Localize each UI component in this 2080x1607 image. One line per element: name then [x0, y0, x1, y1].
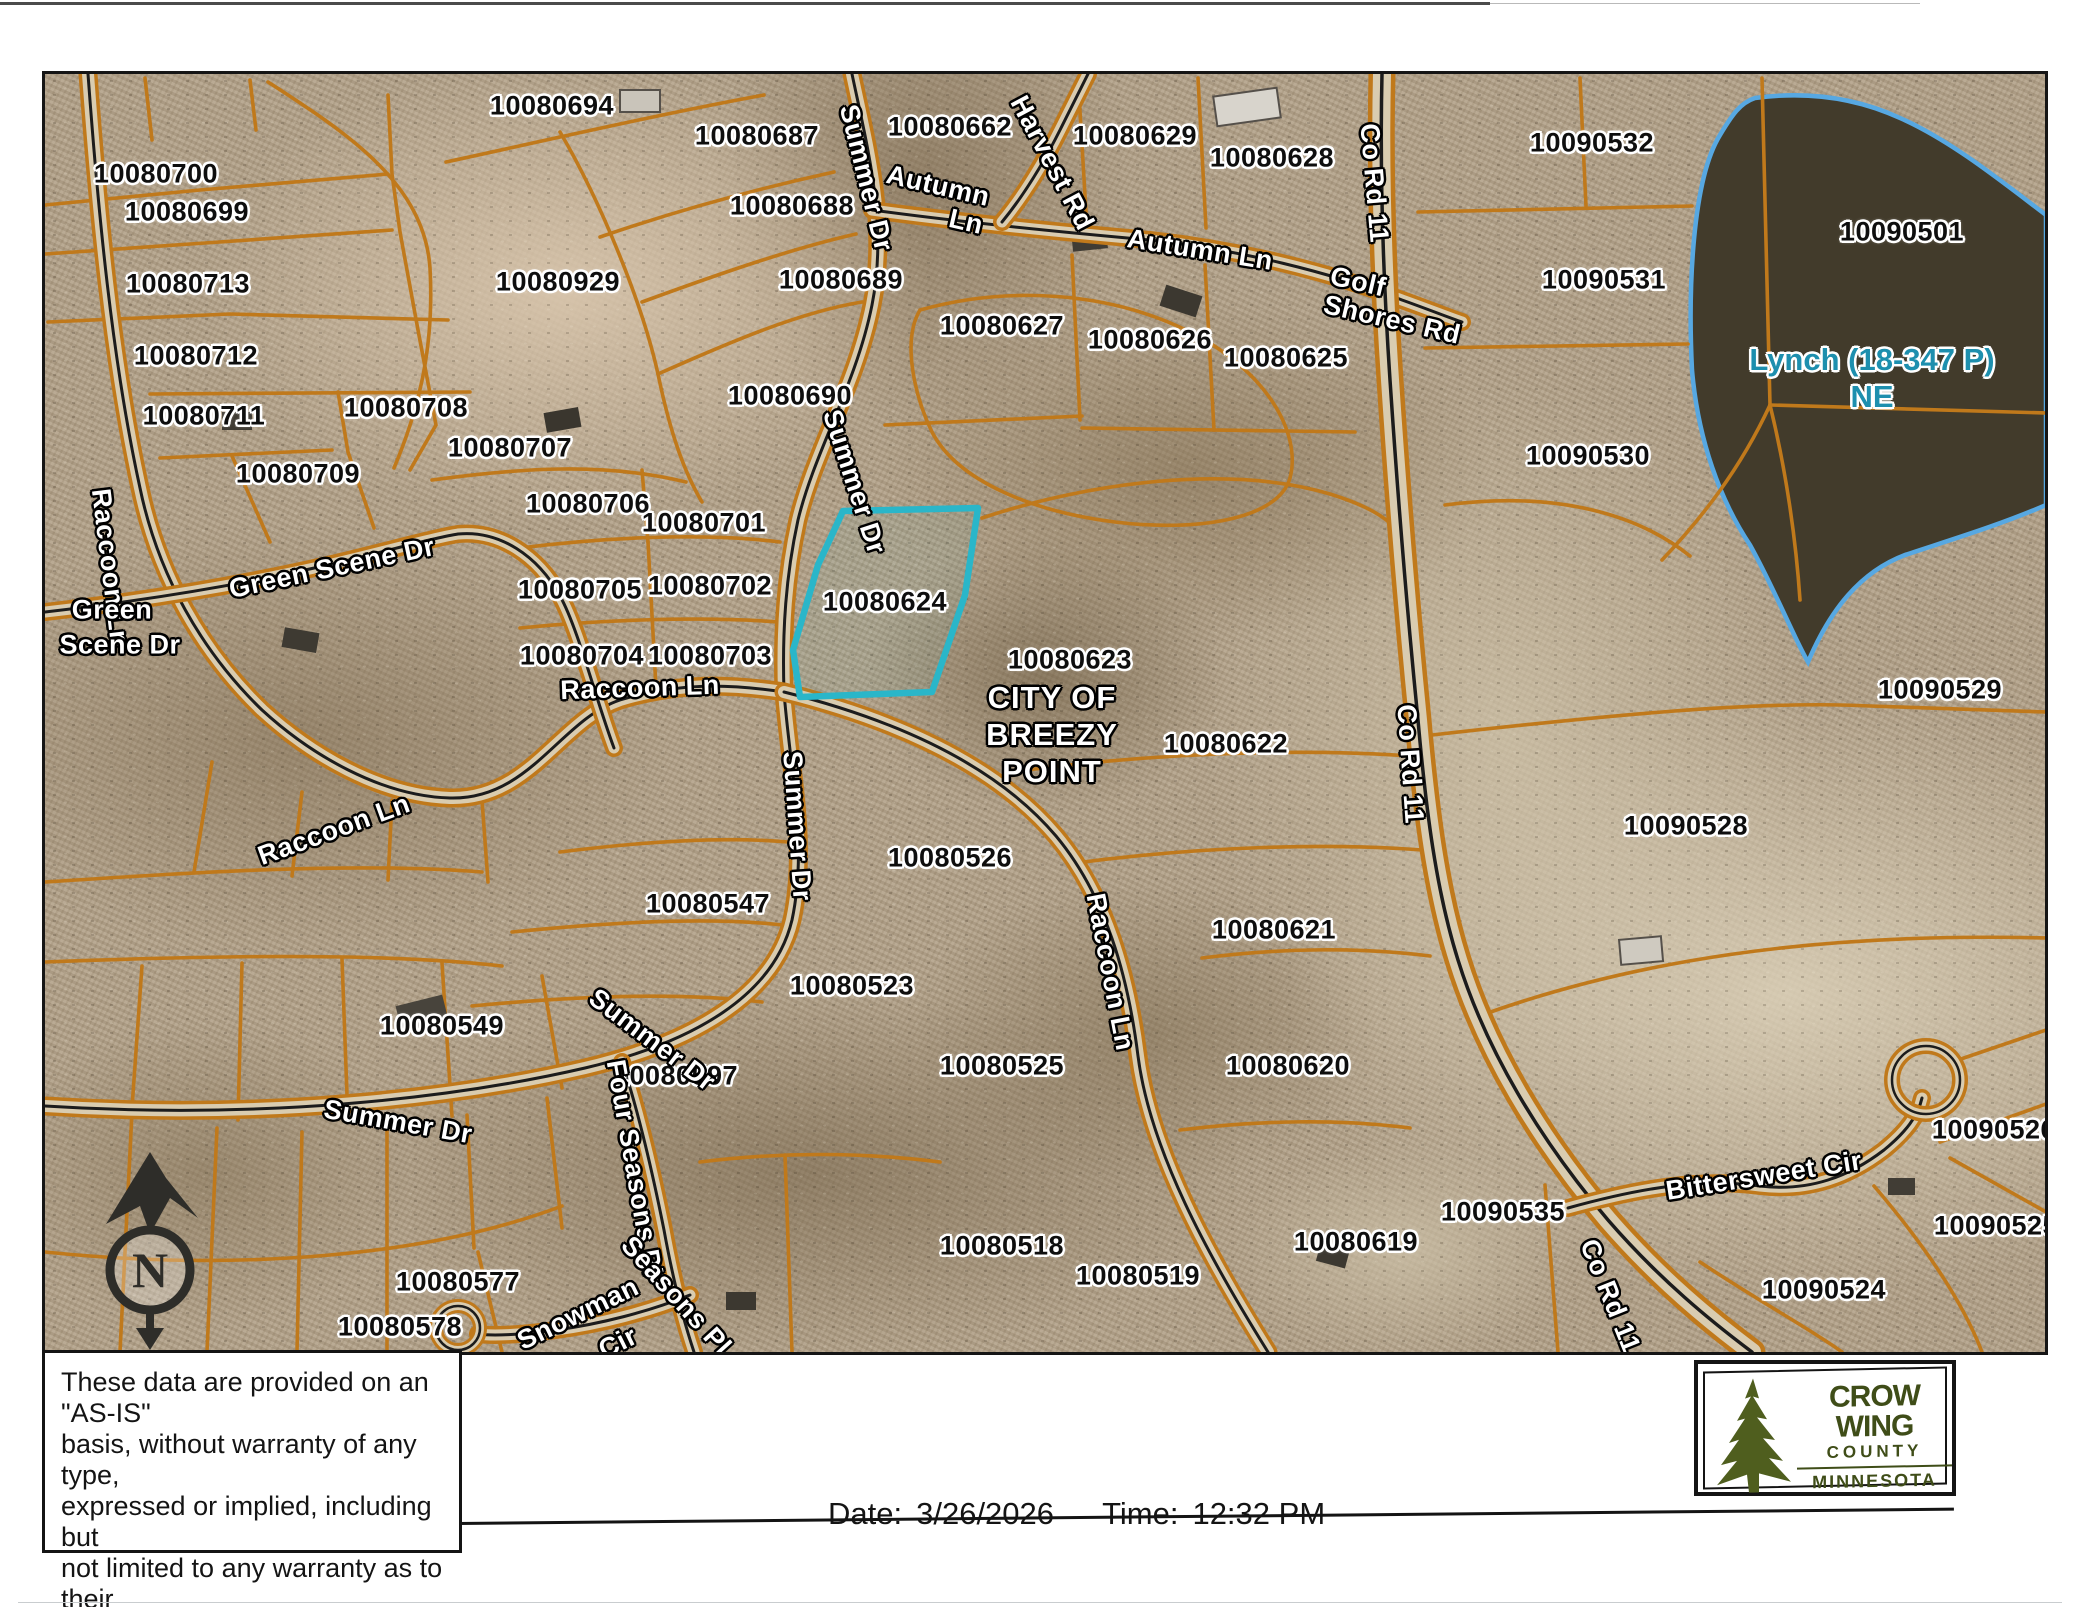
parcel-label: 10080709	[236, 459, 360, 490]
city-label: CITY OF	[988, 680, 1117, 716]
datetime-stamp: Date:3/26/2026 Time:12:32 PM	[828, 1496, 1339, 1532]
logo-name: CROW WING	[1797, 1380, 1952, 1443]
city-label: POINT	[1002, 754, 1102, 790]
road-label: Autumn	[883, 159, 992, 213]
parcel-label: 10090501	[1840, 217, 1964, 248]
parcel-label: 10080622	[1164, 729, 1288, 760]
parcel-label: 10080549	[380, 1011, 504, 1042]
parcel-label: 10080694	[490, 91, 614, 122]
parcel-label: 10090524	[1762, 1275, 1886, 1306]
road-label: Autumn Ln	[1125, 223, 1275, 277]
parcel-label: 10080708	[344, 393, 468, 424]
scan-artifact-line	[18, 1602, 2062, 1603]
logo-state: MINNESOTA	[1797, 1466, 1952, 1495]
disclaimer-box: These data are provided on an "AS-IS"bas…	[42, 1350, 462, 1553]
lake-name-label: NE	[1850, 379, 1893, 415]
parcel-label: 10080626	[1088, 325, 1212, 356]
disclaimer-text-line: expressed or implied, including but	[61, 1491, 459, 1553]
road-label: Green Scene Dr	[226, 531, 437, 605]
road-label: Summer Dr	[321, 1094, 474, 1151]
disclaimer-text-line: These data are provided on an "AS-IS"	[61, 1367, 459, 1429]
road-label: Cir	[594, 1321, 643, 1352]
disclaimer-text-line: not limited to any warranty as to their	[61, 1553, 459, 1607]
parcel-label: 10080623	[1008, 645, 1132, 676]
parcel-label: 10080526	[888, 843, 1012, 874]
logo-county: COUNTY	[1797, 1440, 1952, 1469]
parcel-label: 10080707	[448, 433, 572, 464]
parcel-label: 10090531	[1542, 265, 1666, 296]
parcel-label: 10080706	[526, 489, 650, 520]
road-label: Raccoon Ln	[254, 788, 414, 872]
parcel-label: 10080690	[728, 381, 852, 412]
time-label: Time:	[1102, 1496, 1178, 1531]
parcel-label: 10080705	[518, 575, 642, 606]
scan-artifact-line	[1490, 3, 1920, 4]
date-label: Date:	[828, 1496, 902, 1531]
parcel-label: 10080625	[1224, 343, 1348, 374]
parcel-label: 10080619	[1294, 1227, 1418, 1258]
scanned-map-page: N 10080694100806871008066210080629100806…	[0, 0, 2080, 1607]
road-label: Summer Dr	[816, 406, 892, 558]
time-value: 12:32 PM	[1192, 1496, 1325, 1531]
county-logo: CROW WING COUNTY MINNESOTA	[1694, 1360, 1956, 1496]
parcel-label: 10080687	[695, 121, 819, 152]
road-label: Green	[72, 595, 153, 626]
scan-artifact-line	[0, 2, 1490, 5]
parcel-label: 10080523	[790, 971, 914, 1002]
parcel-label: 10090529	[1878, 675, 2002, 706]
parcel-label: 10090525	[1934, 1211, 2045, 1242]
parcel-label: 10080578	[338, 1312, 462, 1343]
parcel-label: 10080519	[1076, 1261, 1200, 1292]
parcel-label: 10080577	[396, 1267, 520, 1298]
parcel-label: 10080525	[940, 1051, 1064, 1082]
lake-name-label: Lynch (18-347 P)	[1749, 342, 1994, 378]
parcel-label: 10080704	[520, 641, 644, 672]
road-label: Raccoon Ln	[1080, 891, 1141, 1054]
city-label: BREEZY	[986, 717, 1118, 753]
road-label: Ln	[946, 203, 986, 241]
parcel-label: 10080688	[730, 191, 854, 222]
parcel-label: 10080929	[496, 267, 620, 298]
parcel-label: 10080713	[126, 269, 250, 300]
road-label: Raccoon Ln	[560, 670, 721, 707]
road-label: Co Rd 11	[1573, 1235, 1647, 1352]
parcel-label: 10090535	[1441, 1197, 1565, 1228]
parcel-label: 10080699	[125, 197, 249, 228]
road-label: Co Rd 11	[1353, 122, 1394, 244]
parcel-label: 10080518	[940, 1231, 1064, 1262]
road-label: Co Rd 11	[1390, 703, 1429, 824]
parcel-label: 10080712	[134, 341, 258, 372]
parcel-label: 10080621	[1212, 915, 1336, 946]
parcel-label: 10080627	[940, 311, 1064, 342]
parcel-label: 10080702	[648, 571, 772, 602]
road-label: Scene Dr	[59, 630, 180, 661]
county-logo-border: CROW WING COUNTY MINNESOTA	[1703, 1366, 1947, 1489]
parcel-label: 10080662	[888, 112, 1012, 143]
parcel-label: 10090526	[1932, 1115, 2045, 1146]
parcel-label: 10080701	[642, 508, 766, 539]
parcel-label: 10090532	[1530, 128, 1654, 159]
parcel-label: 10080624	[823, 587, 947, 618]
parcel-label: 10080711	[143, 401, 266, 432]
map-area: N 10080694100806871008066210080629100806…	[45, 74, 2045, 1352]
parcel-label: 10090530	[1526, 441, 1650, 472]
disclaimer-text-line: basis, without warranty of any type,	[61, 1429, 459, 1491]
parcel-label: 10080700	[94, 159, 218, 190]
parcel-label: 10080547	[646, 889, 770, 920]
road-label: Harvest Rd	[1004, 91, 1101, 236]
parcel-label: 10080629	[1073, 121, 1197, 152]
date-value: 3/26/2026	[916, 1496, 1054, 1531]
parcel-label: 10080620	[1226, 1051, 1350, 1082]
map-labels-layer: 1008069410080687100806621008062910080628…	[45, 74, 2045, 1352]
parcel-label: 10080628	[1210, 143, 1334, 174]
road-label: Summer Dr	[776, 750, 817, 902]
pine-tree-icon	[1707, 1376, 1799, 1496]
road-label: Bittersweet Cir	[1664, 1145, 1864, 1207]
map-frame: N 10080694100806871008066210080629100806…	[42, 71, 2048, 1355]
parcel-label: 10090528	[1624, 811, 1748, 842]
parcel-label: 10080689	[779, 265, 903, 296]
parcel-label: 10080703	[648, 641, 772, 672]
